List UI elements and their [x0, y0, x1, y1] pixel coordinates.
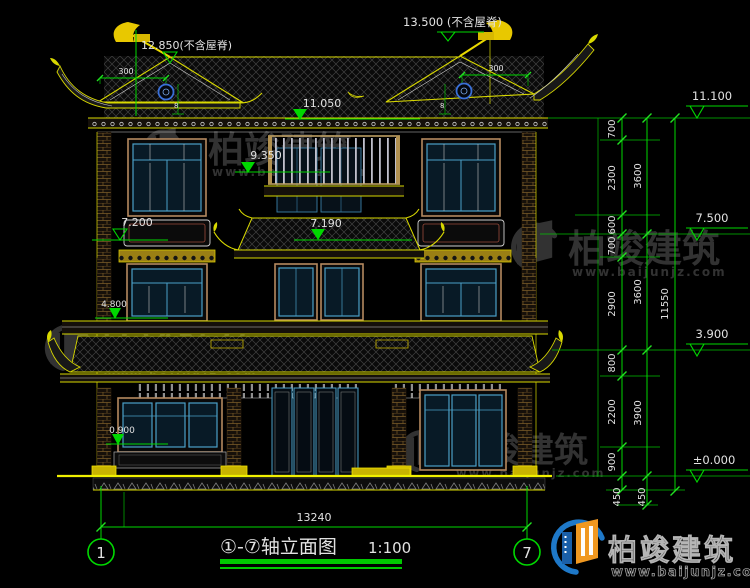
sill-box-right	[418, 220, 504, 246]
door-step	[352, 468, 410, 476]
bracket-band-right	[415, 250, 511, 262]
elev-label: 7.190	[310, 217, 342, 230]
brand-logo-name: 柏竣建筑	[608, 533, 736, 567]
corner-post-right	[522, 132, 536, 258]
elev-label: 3.900	[696, 327, 729, 341]
column-2	[227, 388, 241, 466]
dim-3900: 3900	[633, 400, 644, 425]
dim-eave-right: 300	[488, 64, 503, 73]
balcony-railing-f3	[268, 136, 400, 184]
plinth-base	[57, 476, 552, 490]
callout-label: 8	[174, 102, 178, 110]
title-underline-thick	[220, 559, 402, 564]
window-f2-left	[127, 264, 207, 321]
dim-11550: 11550	[660, 288, 671, 320]
balcony-slab	[62, 321, 548, 334]
door-panel	[316, 388, 336, 476]
dim-2900: 2900	[607, 291, 618, 316]
grid-label: 1	[96, 544, 106, 562]
center-beam	[264, 186, 404, 196]
title-underline-thin	[220, 567, 402, 569]
title-scale: 1:100	[368, 539, 411, 557]
column-3	[392, 388, 406, 466]
brand-logo-url: www.baijunjz.com	[611, 565, 750, 580]
corner-post-left	[97, 132, 111, 258]
elev-label: 11.100	[692, 89, 732, 103]
grid-label: 7	[522, 544, 532, 562]
dim-ridge-main: 13.500 (不含屋脊)	[403, 15, 502, 29]
floor-1	[92, 388, 537, 476]
dim-3600a: 3600	[633, 163, 644, 188]
corner-post-left-f2	[97, 258, 111, 322]
door-panel	[272, 388, 292, 476]
dim-700a: 700	[607, 119, 618, 138]
drawing-surface: 柏竣建筑 www.baijunjz.com 柏竣建筑 www.baijunjz.…	[0, 0, 750, 588]
callout-label: 8	[440, 102, 444, 110]
grid-bubble-7: 7	[514, 539, 540, 565]
floor-2	[62, 258, 548, 334]
title-text: ①-⑦轴立面图	[220, 536, 337, 558]
window-f2-right	[421, 264, 501, 321]
door-panel	[294, 388, 314, 476]
elev-label: 11.050	[303, 97, 342, 110]
sill-panel	[114, 452, 226, 468]
window-f2-center-2	[321, 264, 363, 320]
elev-label: ±0.000	[693, 453, 736, 467]
column-4	[518, 388, 532, 466]
dim-3600b: 3600	[633, 279, 644, 304]
elev-label: 7.500	[696, 211, 729, 225]
dim-2200: 2200	[607, 399, 618, 424]
column-base	[221, 466, 247, 476]
window-f3-right	[422, 139, 500, 216]
bracket-band-left	[119, 250, 215, 262]
dim-900: 900	[607, 452, 618, 471]
elev-label: 9.350	[250, 149, 282, 162]
dim-450b: 450	[637, 487, 648, 506]
dim-eave-left: 300	[118, 67, 133, 76]
dim-bottom-width: 13240	[297, 511, 332, 524]
watermark-url: www.baijunjz.com	[572, 265, 727, 279]
cad-elevation-drawing: 柏竣建筑 www.baijunjz.com 柏竣建筑 www.baijunjz.…	[0, 0, 750, 588]
dim-700b: 700	[607, 236, 618, 255]
grid-bubble-1: 1	[88, 539, 114, 565]
dim-450a: 450	[612, 487, 623, 506]
dim-2300: 2300	[607, 165, 618, 190]
dim-800: 800	[607, 353, 618, 372]
dim-ridge-left: 12.850(不含屋脊)	[141, 38, 232, 52]
corner-post-right-f2	[522, 258, 536, 322]
window-f2-center-1	[275, 264, 317, 320]
rubble-strip	[93, 478, 545, 490]
column-base	[513, 466, 537, 476]
column-base	[92, 466, 116, 476]
door-panel	[338, 388, 358, 476]
dim-600: 600	[607, 215, 618, 234]
window-f1-right	[420, 390, 506, 470]
elev-label: 7.200	[121, 216, 153, 229]
window-f3-left	[128, 139, 206, 216]
